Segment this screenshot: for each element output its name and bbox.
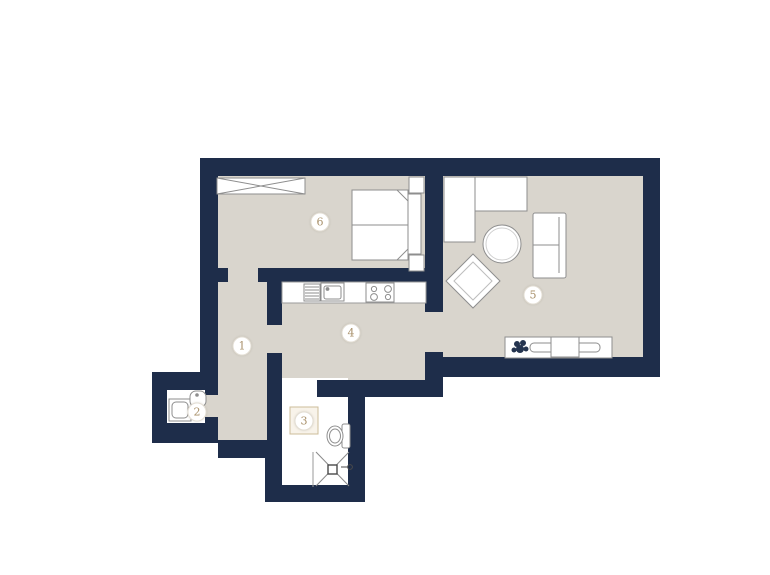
dish-rack-icon: [304, 284, 320, 301]
room-label-1: 1: [233, 337, 252, 356]
wall-1-4-stub-top: [267, 280, 282, 325]
floorplan-svg: [0, 0, 770, 575]
wall-6-door-stub: [218, 268, 228, 282]
wall-room2-door-stub-bottom: [205, 417, 218, 443]
coffee-table-icon: [483, 225, 521, 263]
room-label-3: 3: [295, 412, 314, 431]
wall-right: [643, 158, 660, 377]
kitchen-sink-icon: [321, 283, 344, 301]
wardrobe-icon: [217, 178, 305, 194]
floorplan-canvas: 1 2 3 4 5 6: [0, 0, 770, 575]
stove-icon: [366, 283, 394, 302]
double-bed-icon: [352, 190, 421, 260]
nightstand-icon: [409, 177, 424, 193]
room-label-4: 4: [342, 324, 361, 343]
wall-room3-right: [348, 390, 365, 502]
wall-left: [200, 158, 218, 383]
loveseat-icon: [533, 213, 566, 278]
wall-room3-top: [317, 380, 443, 397]
passage-4-5-floor: [425, 312, 443, 352]
room-label-2: 2: [188, 403, 207, 422]
nightstand-icon: [409, 255, 424, 271]
wall-room5-bottom: [428, 357, 660, 377]
room-label-5: 5: [524, 286, 543, 305]
wall-divider-5-6: [425, 158, 443, 312]
wall-room2-door-stub-top: [205, 383, 218, 395]
room-2-door-gap: [205, 395, 218, 417]
room-label-6: 6: [311, 213, 330, 232]
toilet-icon: [327, 424, 350, 448]
